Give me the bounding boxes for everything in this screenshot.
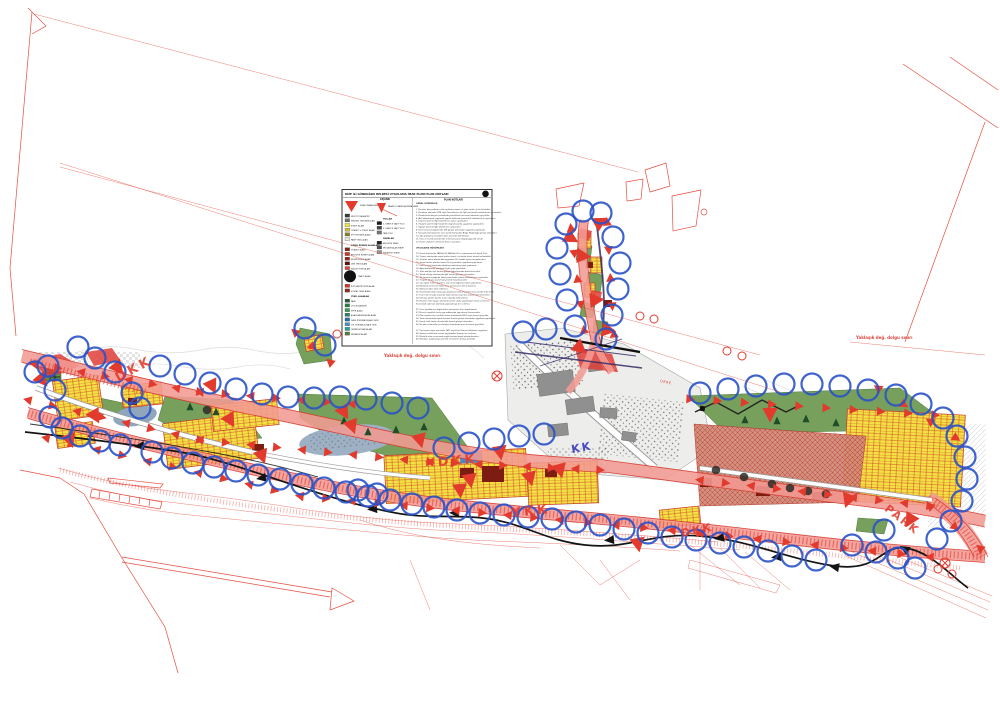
svg-text:YOL KORUMA KUŞAĞI (YKK): YOL KORUMA KUŞAĞI (YKK) — [351, 324, 377, 327]
crossed-circle-symbol — [492, 371, 502, 381]
tree-icon — [203, 406, 212, 415]
plan-note-line: 16. Sosyal donatı alanları kamu eline ge… — [416, 261, 483, 264]
svg-text:YAYA YOLU: YAYA YOLU — [383, 232, 394, 235]
boundary-triangle — [22, 394, 32, 405]
plan-note-line: 3. Planda belirtilmeyen hususlarda yürür… — [416, 214, 490, 217]
flow-arrow-icon — [828, 562, 839, 573]
svg-text:MEZARLIK ALANI: MEZARLIK ALANI — [351, 333, 367, 336]
svg-text:1. DERECE TAŞIT YOLU: 1. DERECE TAŞIT YOLU — [383, 222, 405, 225]
boundary-circle — [547, 238, 568, 259]
imar-plan-map: DKKDKKDKKYKKKKPARKYaklaşık değ. dolgu sı… — [0, 0, 1000, 707]
svg-text:MEVCUT KADASTRO: MEVCUT KADASTRO — [351, 215, 370, 218]
plan-note-line: 27. İmar hattı ile yapı arasında kalan a… — [416, 293, 490, 296]
plan-note-line: 22. Otopark ihtiyacı parsel bünyesinde k… — [416, 279, 468, 282]
svg-text:SAĞLIK TESİS ALANI: SAĞLIK TESİS ALANI — [351, 267, 370, 270]
plan-note-line: 5. Deprem yönetmeliği hükümlerine aynen … — [416, 220, 469, 223]
plan-note-line: GENEL HÜKÜMLER — [416, 202, 438, 205]
plan-note-line: 4. Afet bölgelerinde yapılacak yapılar h… — [416, 217, 496, 220]
plan-note-line: 32. Mevcut teşekkül etmiş yapı adalarınd… — [416, 311, 481, 314]
svg-text:TİCARET ALANI: TİCARET ALANI — [351, 249, 366, 252]
plan-note-line: 34. Tarım alanlarında toprak koruma kuru… — [416, 317, 496, 320]
boundary-circle — [603, 227, 624, 248]
legend-panel: RİZE İLİ GÜNDOĞDU BELDESİ UYGULAMA İMAR … — [342, 190, 502, 347]
svg-text:DİNİ TESİS ALANI: DİNİ TESİS ALANI — [351, 263, 368, 266]
plan-note-line: 25. Bodrum katlar iskan edilemez. — [416, 288, 449, 291]
svg-text:RESMİ KURUM ALANI: RESMİ KURUM ALANI — [351, 258, 371, 261]
boundary-circle — [175, 364, 196, 385]
ring-symbol — [333, 330, 341, 338]
svg-text:TİCARET + KONUT ALANI: TİCARET + KONUT ALANI — [351, 229, 375, 232]
svg-text:İLKÖĞRETİM TESİS ALANI: İLKÖĞRETİM TESİS ALANI — [351, 285, 375, 288]
plan-notes-title: PLAN NOTLARI — [444, 199, 463, 202]
plan-note-line: 30. Jeolojik sakıncalı alanlarda yapılaş… — [416, 302, 471, 305]
boundary-circle — [278, 387, 299, 408]
plan-note-line: 40. Belediye, uygulamaya yönelik ek kara… — [416, 338, 476, 341]
svg-text:PLAN ONAMA SINIRI: PLAN ONAMA SINIRI — [360, 204, 379, 207]
plan-note-line: 13. Konut alanlarında TAKS=0.30 KAKS=0.9… — [416, 252, 488, 255]
plan-note-line: 21. Yol koruma kuşağında kalan parseller… — [416, 276, 489, 279]
svg-text:TRAFO ALANI: TRAFO ALANI — [358, 275, 371, 278]
svg-text:SOSYAL TESİS ALANI: SOSYAL TESİS ALANI — [351, 290, 371, 293]
boundary-circle — [610, 253, 631, 274]
plan-note-line: 35. Enerji nakil hatları altında ilgili … — [416, 320, 473, 323]
plan-note-line: 36. Bu plan notlarında yer almayan husus… — [416, 323, 484, 326]
svg-text:AĞAÇLANDIRILACAK ALAN: AĞAÇLANDIRILACAK ALAN — [351, 314, 376, 317]
ring-symbol — [723, 347, 731, 355]
svg-text:TEKNİK ALTYAPI ALANI: TEKNİK ALTYAPI ALANI — [351, 328, 372, 331]
plan-note-line: 10. Yapı yaklaşma mesafeleri plan üzerin… — [416, 234, 470, 237]
svg-text:BELEDİYE SINIRI: BELEDİYE SINIRI — [383, 242, 399, 245]
svg-text:YOLLAR: YOLLAR — [382, 219, 392, 221]
svg-text:2. DERECE TAŞIT YOLU: 2. DERECE TAŞIT YOLU — [383, 227, 405, 230]
boundary-circle — [774, 374, 795, 395]
svg-text:PARK: PARK — [351, 300, 357, 303]
tree-icon — [786, 484, 795, 493]
plan-note-line: 26. Parsellerde birden fazla yapı yapılm… — [416, 291, 495, 294]
boundary-circle — [927, 529, 948, 550]
ring-symbol — [636, 312, 644, 320]
svg-text:BELEDİYE HİZMET ALANI: BELEDİYE HİZMET ALANI — [351, 253, 375, 256]
plan-note-line: 28. Kamuya ayrılan alanlar amacı dışında… — [416, 296, 469, 299]
legend-title: RİZE İLİ GÜNDOĞDU BELDESİ UYGULAMA İMAR … — [345, 191, 449, 196]
plan-note-line: 17. Park ve yeşil alanlarda sökülemez-ta… — [416, 264, 477, 267]
svg-text:KÖY YERLEŞİK ALANI: KÖY YERLEŞİK ALANI — [351, 234, 371, 237]
svg-text:KARAYOLU KAMULAŞTIRMA SINIRI: KARAYOLU KAMULAŞTIRMA SINIRI — [388, 205, 419, 208]
boundary-circle — [608, 279, 629, 300]
plan-note-line: 8. Dere koruma kuşaklarında DSİ görüşü a… — [416, 229, 486, 232]
svg-text:MÜCAVİR ALAN SINIRI: MÜCAVİR ALAN SINIRI — [383, 247, 404, 250]
map-label: Yaklaşık değ. dolgu sınırı — [855, 335, 913, 340]
plan-note-line: 14. Ticaret alanlarında zemin katlar tic… — [416, 255, 492, 258]
plan-note-line: 6. Otopark yönetmeliği hükümleri doğrult… — [416, 223, 485, 226]
tree-icon — [712, 466, 721, 475]
svg-text:SPOR ALANI: SPOR ALANI — [351, 309, 363, 312]
svg-text:YEŞİL ALANLAR: YEŞİL ALANLAR — [350, 295, 369, 298]
north-arrow-icon — [482, 191, 489, 198]
plan-note-line: 38. Sanayi tesislerinde arıtma yapılmada… — [416, 332, 477, 335]
ring-symbol — [738, 352, 746, 360]
boundary-triangle — [273, 442, 282, 452]
plan-note-line: 12. Parsel cepheleri minimum 8.00 m olac… — [416, 240, 461, 243]
boundary-circle — [484, 429, 505, 450]
plan-note-line: 37. Kıyı kenar çizgisi içerisinde 3621 s… — [416, 329, 488, 332]
plan-note-line: 29. Heyelan riski taşıyan alanlarda zemi… — [416, 299, 490, 302]
tree-icon — [740, 473, 749, 482]
boundary-circle — [550, 264, 571, 285]
plan-note-line: 9. Karayolu kamulaştırma sınırı içinde K… — [416, 232, 497, 235]
plan-sheet: DKKDKKDKKYKKKKPARKYaklaşık değ. dolgu sı… — [0, 0, 1000, 707]
plan-note-line: 15. Gelişme konut alanlarında uygulama 1… — [416, 258, 486, 261]
plan-note-line: 2. Planlama alanında 3194 sayılı İmar Ka… — [416, 211, 502, 214]
plan-note-line: 20. Teknik altyapı alanlarında ilgili ku… — [416, 273, 475, 276]
boundary-circle — [226, 379, 247, 400]
map-label: DKK — [437, 452, 478, 470]
plan-note-line: UYGULAMA HÜKÜMLERİ — [416, 246, 444, 249]
plan-note-line: 23. Çatı eğimi %33'ü geçemez. Çatı arası… — [416, 282, 482, 285]
plan-note-line: 39. Mezarlık alanı çevresinde sağlık kor… — [416, 335, 479, 338]
cadastral-lines — [10, 8, 998, 673]
plan-note-line: 11. İfraz ve tevhid işlemlerinde minimum… — [416, 237, 484, 240]
svg-text:SINIRLAR: SINIRLAR — [383, 238, 394, 240]
svg-text:KENTSEL YERLEŞİK ALAN: KENTSEL YERLEŞİK ALAN — [351, 220, 375, 223]
svg-text:DERE KORUMA KUŞAĞI (DKK): DERE KORUMA KUŞAĞI (DKK) — [351, 319, 379, 322]
svg-text:KADASTRO SINIRI: KADASTRO SINIRI — [383, 251, 400, 254]
plan-note-line: 33. Plan onama sınırı içindeki orman ala… — [416, 314, 489, 317]
plan-note-line: 7. Sığınak yönetmeliği hükümlerine uyula… — [416, 226, 461, 229]
map-label: Yaklaşık değ. dolgu sınırı — [383, 353, 441, 358]
ring-symbol — [650, 315, 658, 323]
svg-text:PASİF YEŞİL ALAN: PASİF YEŞİL ALAN — [351, 238, 368, 241]
plan-note-line: 1. Bu plan; plan paftaları, plan açıklam… — [416, 208, 491, 211]
legend-lejand-label: LEJAND — [380, 198, 390, 201]
plan-note-line: 31. Dere yataklarının doğal halleri koru… — [416, 308, 478, 311]
svg-text:ÇOCUK BAHÇESİ: ÇOCUK BAHÇESİ — [351, 305, 367, 308]
svg-text:KONUT ALANI: KONUT ALANI — [351, 224, 364, 227]
boundary-circle — [557, 290, 578, 311]
